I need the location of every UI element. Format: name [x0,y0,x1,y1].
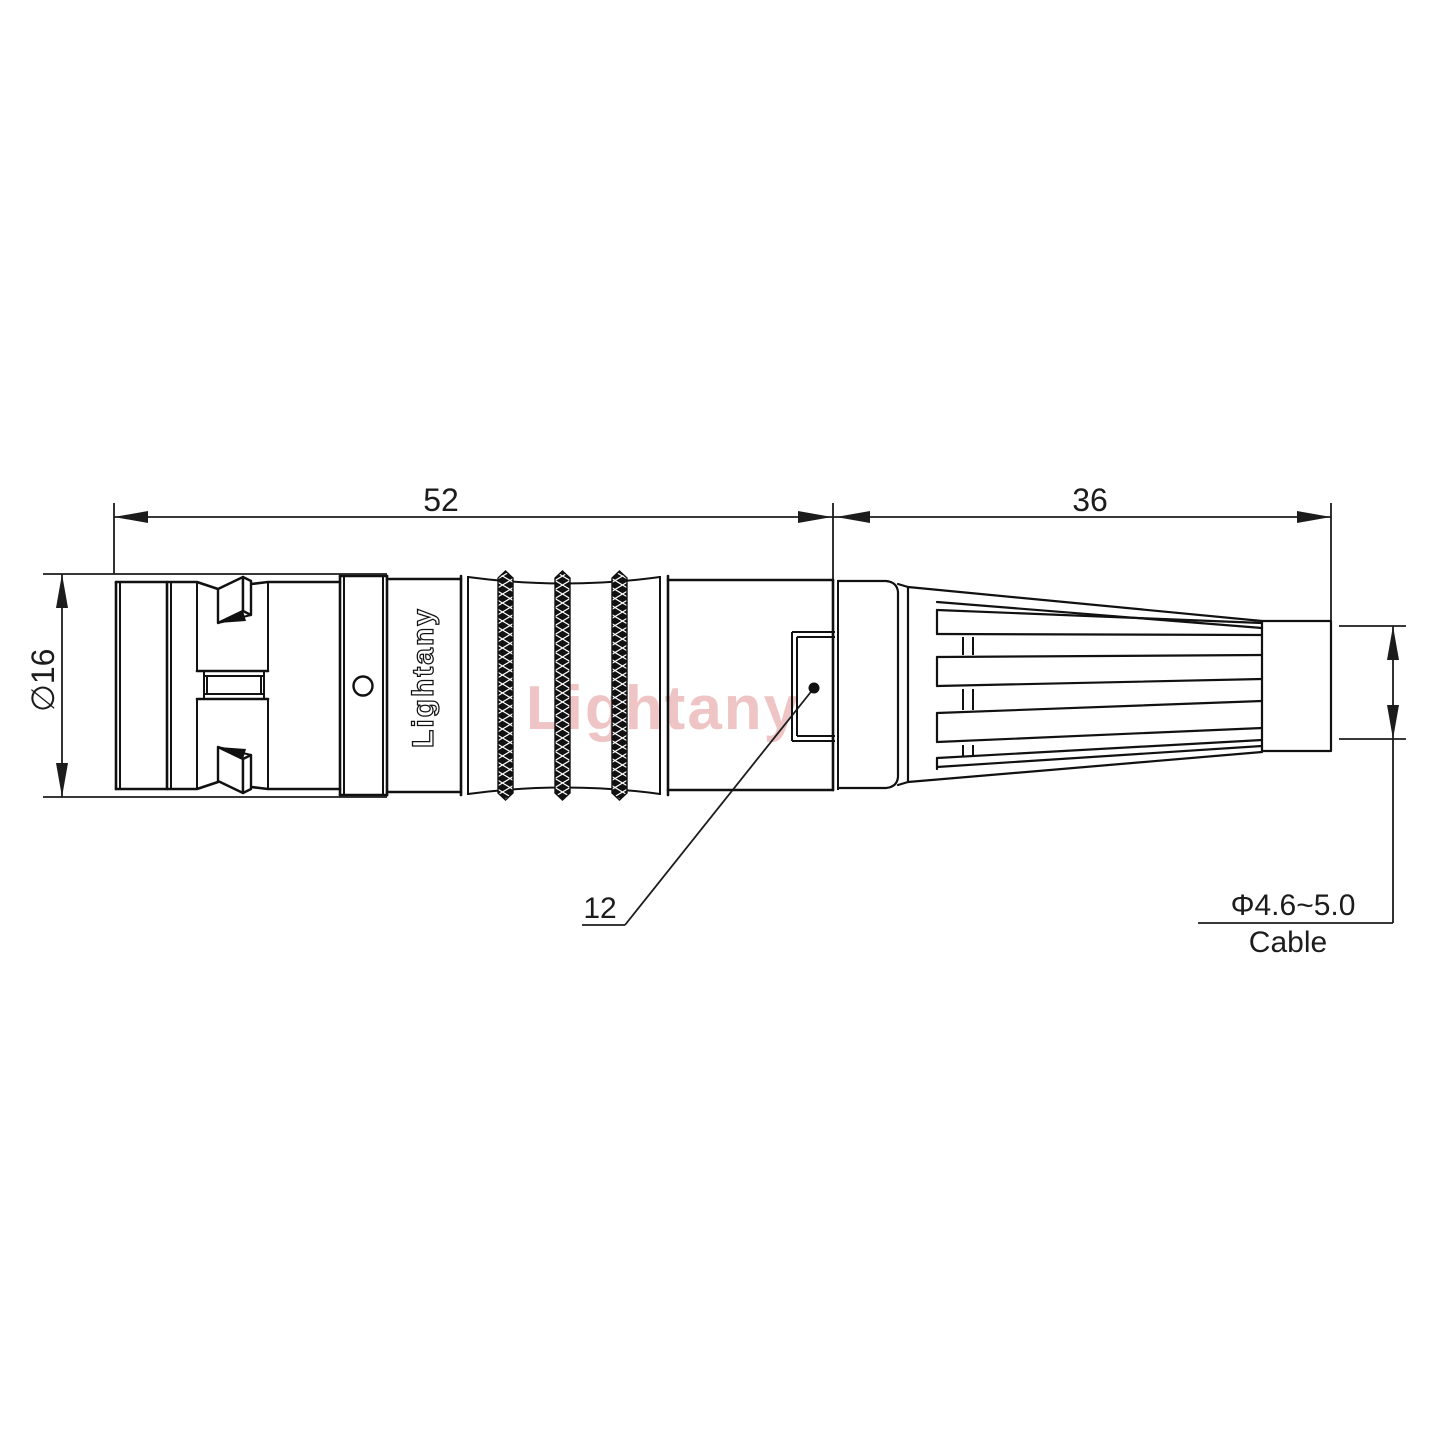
connector-drawing: Lightany 52 36 ∅16 12 Φ4. [0,0,1440,1440]
outer-diameter-label: ∅16 [25,649,61,712]
boot-length-label: 36 [1072,482,1108,518]
brand-logo-text: Lightany [407,607,440,748]
knurl-band [612,571,627,800]
dimension-52: 52 [114,482,833,580]
item-ref-label: 12 [583,892,616,925]
dimension-cable: Φ4.6~5.0 Cable [1198,626,1406,959]
knurl-band [555,571,570,800]
alignment-hole [354,677,373,696]
strain-relief-boot [838,581,1331,788]
top-latch-key [218,577,251,623]
bottom-latch-key [218,747,251,793]
cable-diameter-label: Φ4.6~5.0 [1231,889,1356,922]
leader-dot [809,683,820,694]
collar-ring [340,576,387,795]
body-length-label: 52 [423,482,459,518]
cable-label: Cable [1249,926,1327,959]
boot-end-cap [1262,621,1331,751]
knurl-band [498,571,513,800]
technical-drawing-page: Lightany 52 36 ∅16 12 Φ4. [0,0,1440,1440]
connector-front-barrel [116,577,340,793]
